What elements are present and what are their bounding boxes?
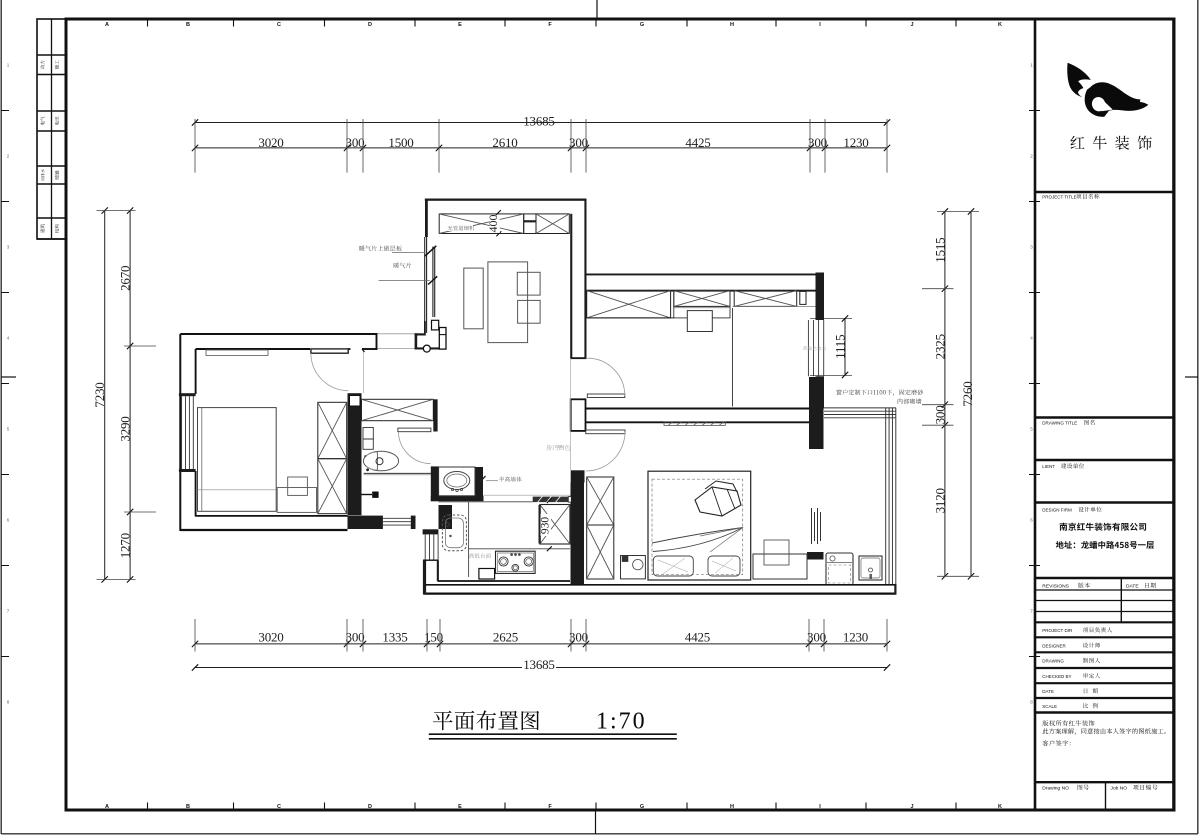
svg-text:3020: 3020 <box>258 629 283 644</box>
svg-text:G: G <box>640 22 644 28</box>
svg-text:300: 300 <box>569 135 588 150</box>
svg-text:2: 2 <box>1030 154 1033 159</box>
svg-text:1230: 1230 <box>843 135 868 150</box>
svg-text:13685: 13685 <box>523 113 555 128</box>
svg-text:5: 5 <box>1030 427 1033 432</box>
svg-text:1115: 1115 <box>832 335 847 359</box>
svg-text:DESIGNER: DESIGNER <box>1042 643 1066 648</box>
svg-text:1515: 1515 <box>932 237 947 262</box>
svg-text:LIENT: LIENT <box>1042 464 1055 469</box>
svg-text:K: K <box>998 804 1002 810</box>
svg-text:7: 7 <box>1030 609 1033 614</box>
svg-text:8: 8 <box>7 700 10 705</box>
svg-text:300: 300 <box>932 405 947 424</box>
svg-text:8: 8 <box>1030 700 1033 705</box>
svg-text:SCALE: SCALE <box>1042 704 1057 709</box>
svg-text:930: 930 <box>540 517 552 535</box>
svg-text:4: 4 <box>1030 336 1033 341</box>
svg-text:E: E <box>458 804 462 810</box>
svg-text:REVISIONS: REVISIONS <box>1042 584 1069 590</box>
svg-text:H: H <box>730 22 734 28</box>
svg-text:7260: 7260 <box>960 381 975 406</box>
svg-text:PROJECT TITLE: PROJECT TITLE <box>1042 195 1076 200</box>
svg-text:4425: 4425 <box>685 135 710 150</box>
svg-text:Drawing NO: Drawing NO <box>1042 786 1069 792</box>
svg-text:2325: 2325 <box>932 334 947 359</box>
svg-text:J: J <box>910 804 913 810</box>
svg-text:4: 4 <box>7 336 10 341</box>
svg-text:300: 300 <box>346 629 365 644</box>
svg-text:3290: 3290 <box>118 416 133 441</box>
svg-text:A: A <box>105 804 109 810</box>
svg-text:300: 300 <box>808 135 827 150</box>
svg-text:4425: 4425 <box>685 629 710 644</box>
svg-text:13685: 13685 <box>523 657 555 672</box>
svg-text:H: H <box>730 804 734 810</box>
svg-text:J: J <box>910 22 913 28</box>
svg-text:300: 300 <box>807 629 826 644</box>
svg-text:B: B <box>186 22 190 28</box>
svg-text:D: D <box>368 804 372 810</box>
svg-text:300: 300 <box>346 135 365 150</box>
svg-text:1: 1 <box>7 63 10 68</box>
svg-text:1270: 1270 <box>118 533 133 558</box>
svg-text:7: 7 <box>7 609 10 614</box>
svg-text:C: C <box>277 22 281 28</box>
svg-text:G: G <box>640 804 644 810</box>
svg-text:2625: 2625 <box>493 629 518 644</box>
svg-text:K: K <box>998 22 1002 28</box>
svg-text:DATE: DATE <box>1042 689 1054 694</box>
svg-text:1: 1 <box>1030 63 1033 68</box>
svg-text:3120: 3120 <box>932 488 947 513</box>
svg-text:Job NO: Job NO <box>1111 786 1128 792</box>
svg-text:1:70: 1:70 <box>596 709 647 735</box>
svg-text:300: 300 <box>569 629 588 644</box>
svg-text:I: I <box>819 22 821 28</box>
svg-text:1500: 1500 <box>388 135 413 150</box>
svg-text:DESIGN FIRM: DESIGN FIRM <box>1042 508 1072 513</box>
svg-text:1335: 1335 <box>382 629 407 644</box>
svg-text:DRAWING: DRAWING <box>1042 659 1064 664</box>
svg-text:A: A <box>105 22 109 28</box>
svg-text:CHECKED BY: CHECKED BY <box>1042 674 1071 679</box>
svg-text:3: 3 <box>1030 245 1033 250</box>
svg-text:E: E <box>458 22 462 28</box>
svg-text:2670: 2670 <box>118 266 133 291</box>
svg-text:3: 3 <box>7 245 10 250</box>
svg-text:6: 6 <box>1030 518 1033 523</box>
svg-text:3020: 3020 <box>258 135 283 150</box>
svg-text:F: F <box>548 22 552 28</box>
svg-text:7230: 7230 <box>92 382 107 407</box>
svg-text:5: 5 <box>7 427 10 432</box>
svg-text:D: D <box>368 22 372 28</box>
svg-text:2610: 2610 <box>492 135 517 150</box>
svg-text:DRAWING TITLE: DRAWING TITLE <box>1042 421 1077 426</box>
svg-text:DATE: DATE <box>1126 584 1139 590</box>
svg-text:ane: ane <box>555 443 564 450</box>
svg-text:B: B <box>186 804 190 810</box>
svg-text:PROJECT DIR: PROJECT DIR <box>1042 628 1073 633</box>
svg-text:1230: 1230 <box>843 629 868 644</box>
svg-text:6: 6 <box>7 518 10 523</box>
svg-text:400: 400 <box>486 215 500 233</box>
svg-text:C: C <box>277 804 281 810</box>
svg-text:2: 2 <box>7 154 10 159</box>
